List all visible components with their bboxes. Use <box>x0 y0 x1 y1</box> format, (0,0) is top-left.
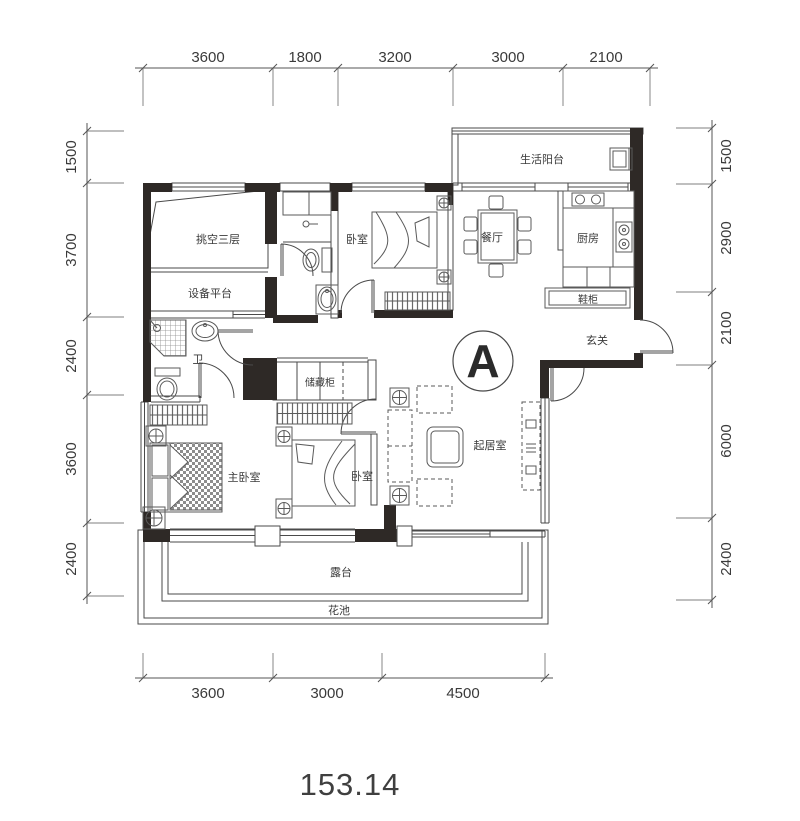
label-shoe-cabinet: 鞋柜 <box>578 293 598 306</box>
label-master-bedroom: 主卧室 <box>228 470 261 484</box>
dim-bottom-2: 3000 <box>310 685 343 702</box>
washing-machine-icon <box>610 148 632 170</box>
floor-plan-page: 3600 1800 3200 3000 2100 3600 3000 4500 … <box>0 0 800 821</box>
dim-left-3: 2400 <box>63 339 80 372</box>
bath-fixtures <box>150 320 218 400</box>
label-dining: 餐厅 <box>481 230 503 244</box>
label-bedroom-top: 卧室 <box>346 232 368 246</box>
label-bedroom-bottom: 卧室 <box>351 469 373 483</box>
door-bedroom-top <box>341 280 374 313</box>
label-kitchen: 厨房 <box>577 232 599 245</box>
living-room-sofa <box>388 386 540 506</box>
unit-marker: A <box>453 331 513 391</box>
dim-left-2: 3700 <box>63 233 80 266</box>
dim-bottom-3: 4500 <box>446 685 479 702</box>
furniture <box>143 148 634 529</box>
dim-top-2: 1800 <box>288 49 321 66</box>
dim-left-1: 1500 <box>63 140 80 173</box>
door-entry <box>640 320 673 353</box>
door-foyer <box>551 368 584 401</box>
bedroom-bottom-bed <box>276 403 355 518</box>
label-storage: 储藏柜 <box>305 376 335 389</box>
dim-left-4: 3600 <box>63 442 80 475</box>
label-living-balcony: 生活阳台 <box>520 152 564 166</box>
label-entry: 玄关 <box>586 333 608 347</box>
dim-left-5: 2400 <box>63 542 80 575</box>
dim-top-5: 2100 <box>589 49 622 66</box>
door-master-bedroom <box>199 363 234 398</box>
dim-bottom-1: 3600 <box>191 685 224 702</box>
dim-right-5: 2400 <box>718 542 735 575</box>
thin-walls <box>138 128 643 624</box>
bathroom-top-fixtures <box>283 192 338 314</box>
dim-right-3: 2100 <box>718 311 735 344</box>
dim-top-3: 3200 <box>378 49 411 66</box>
dim-right-2: 2900 <box>718 221 735 254</box>
label-terrace: 露台 <box>330 565 352 579</box>
label-flower-bed: 花池 <box>328 604 350 617</box>
label-void-3f: 挑空三层 <box>196 232 240 246</box>
door-bathroom-top <box>281 244 313 276</box>
dim-top-4: 3000 <box>491 49 524 66</box>
label-equip-platform: 设备平台 <box>188 286 232 300</box>
bedroom-top-bed <box>372 196 451 310</box>
label-living-room: 起居室 <box>474 438 507 452</box>
dim-top-1: 3600 <box>191 49 224 66</box>
dimension-lines <box>83 64 716 682</box>
dim-right-4: 6000 <box>718 424 735 457</box>
dimension-ticks <box>83 64 716 682</box>
dim-right-1: 1500 <box>718 139 735 172</box>
floor-plan-svg: 3600 1800 3200 3000 2100 3600 3000 4500 … <box>0 0 800 821</box>
master-bed <box>143 405 222 529</box>
unit-marker-letter: A <box>466 335 499 387</box>
label-bath: 卫 <box>193 354 204 366</box>
area-value: 153.14 <box>300 767 401 802</box>
